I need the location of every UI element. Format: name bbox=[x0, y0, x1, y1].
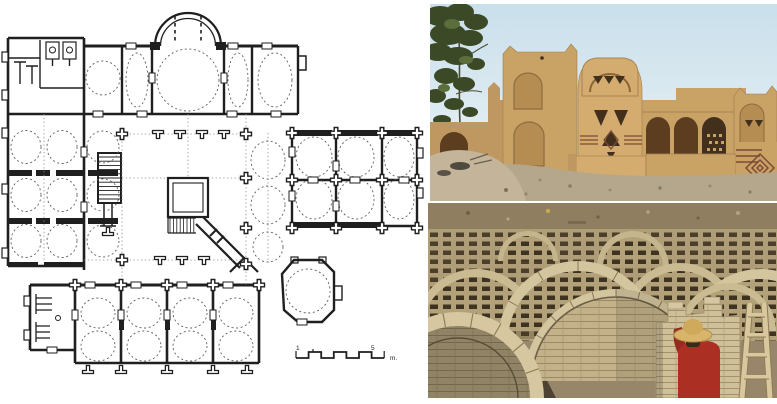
scale-unit-label: m. bbox=[390, 355, 397, 362]
brick-vaults-svg bbox=[428, 203, 777, 398]
staircase bbox=[98, 153, 121, 226]
photo-earthen-buildings bbox=[430, 4, 777, 201]
worker-shirt bbox=[678, 341, 720, 398]
central-pool bbox=[168, 178, 208, 233]
straw-hat-crown bbox=[683, 319, 703, 335]
figure-canvas: 1 5 m. bbox=[0, 0, 777, 404]
main-tower bbox=[503, 44, 577, 174]
scale-bar-steps bbox=[296, 352, 384, 358]
scale-end-label: 5 bbox=[371, 345, 375, 352]
floor-plan-figure: 1 5 m. bbox=[0, 0, 424, 404]
earthen-buildings-svg bbox=[430, 4, 777, 201]
dirt-ground-strip bbox=[428, 203, 777, 229]
apse bbox=[150, 13, 226, 50]
scale-start-label: 1 bbox=[296, 345, 300, 352]
photo-brick-vaults bbox=[428, 203, 777, 398]
scale-bar: 1 5 m. bbox=[296, 345, 397, 362]
floor-plan-svg: 1 5 m. bbox=[0, 0, 424, 404]
octagonal-room bbox=[282, 257, 342, 322]
